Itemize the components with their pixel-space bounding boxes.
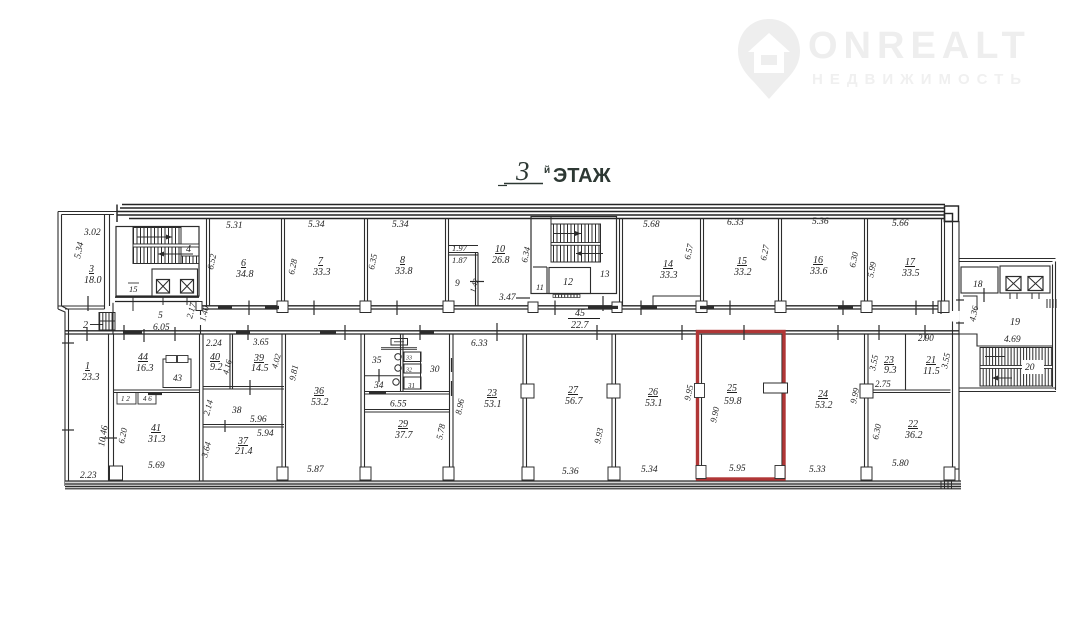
svg-text:7: 7: [318, 256, 324, 267]
svg-text:6.20: 6.20: [116, 426, 129, 444]
svg-text:53.2: 53.2: [311, 397, 329, 408]
svg-text:26.8: 26.8: [492, 255, 510, 266]
svg-text:6.28: 6.28: [286, 257, 299, 275]
svg-text:34.8: 34.8: [235, 269, 254, 280]
svg-text:9.3: 9.3: [884, 365, 897, 376]
svg-text:33.6: 33.6: [809, 266, 828, 277]
svg-text:31: 31: [407, 382, 415, 390]
svg-text:43: 43: [173, 373, 183, 383]
svg-text:34: 34: [373, 381, 384, 391]
svg-text:5.68: 5.68: [643, 220, 660, 230]
svg-text:5.33: 5.33: [809, 465, 826, 475]
svg-text:5.78: 5.78: [434, 422, 447, 440]
svg-text:2.24: 2.24: [206, 338, 222, 348]
svg-text:6.27: 6.27: [758, 243, 771, 261]
svg-text:32: 32: [405, 368, 412, 374]
svg-text:2.75: 2.75: [875, 379, 891, 389]
svg-text:13: 13: [600, 270, 610, 280]
svg-text:9.93: 9.93: [592, 426, 605, 444]
svg-text:6.33: 6.33: [471, 339, 488, 349]
svg-text:11.5: 11.5: [923, 366, 940, 377]
svg-text:6: 6: [241, 258, 246, 269]
svg-text:11: 11: [536, 282, 544, 292]
svg-text:9.90: 9.90: [708, 405, 721, 423]
svg-text:6.35: 6.35: [366, 252, 379, 270]
svg-text:33.3: 33.3: [312, 267, 331, 278]
svg-text:1 2: 1 2: [121, 395, 130, 403]
svg-text:1: 1: [85, 361, 90, 372]
svg-text:36.2: 36.2: [904, 430, 923, 441]
svg-text:17: 17: [905, 257, 916, 268]
svg-text:26: 26: [648, 387, 658, 398]
svg-text:29: 29: [398, 419, 408, 430]
svg-text:6.57: 6.57: [682, 242, 695, 260]
svg-text:2.23: 2.23: [80, 471, 97, 481]
svg-text:59.8: 59.8: [724, 396, 742, 407]
svg-text:8: 8: [400, 255, 405, 266]
svg-text:1.42: 1.42: [468, 278, 480, 294]
svg-text:38: 38: [231, 406, 242, 416]
svg-text:23: 23: [487, 388, 497, 399]
svg-text:5.69: 5.69: [148, 461, 165, 471]
svg-text:8.96: 8.96: [453, 397, 466, 415]
svg-text:5.99: 5.99: [865, 260, 878, 278]
svg-text:4 6: 4 6: [143, 395, 152, 403]
svg-text:5: 5: [158, 311, 163, 321]
svg-text:33.3: 33.3: [659, 270, 678, 281]
svg-text:22: 22: [908, 419, 918, 430]
svg-text:16: 16: [813, 255, 823, 266]
svg-text:5.31: 5.31: [226, 221, 243, 231]
svg-text:20: 20: [1025, 363, 1035, 373]
svg-text:ONREALT: ONREALT: [808, 25, 1031, 67]
svg-text:й: й: [544, 165, 550, 176]
svg-text:ЭТАЖ: ЭТАЖ: [553, 165, 612, 187]
svg-text:33: 33: [405, 356, 412, 362]
svg-text:4.16: 4.16: [220, 358, 234, 376]
svg-text:37.7: 37.7: [394, 430, 414, 441]
svg-text:10: 10: [495, 244, 505, 255]
svg-text:23.3: 23.3: [82, 372, 100, 383]
svg-text:4.02: 4.02: [269, 352, 283, 370]
svg-text:53.2: 53.2: [815, 400, 833, 411]
svg-text:3: 3: [515, 156, 530, 186]
svg-text:НЕДВИЖИМОСТЬ: НЕДВИЖИМОСТЬ: [812, 71, 1028, 88]
svg-text:3.64: 3.64: [199, 440, 213, 459]
svg-text:9: 9: [455, 279, 460, 289]
svg-text:5.36: 5.36: [812, 217, 829, 227]
svg-text:21.4: 21.4: [235, 446, 253, 457]
svg-text:3: 3: [88, 264, 94, 275]
svg-text:5.66: 5.66: [892, 219, 909, 229]
svg-text:21: 21: [926, 355, 936, 366]
svg-text:5.94: 5.94: [257, 429, 274, 439]
svg-text:5.96: 5.96: [250, 415, 267, 425]
svg-text:6.30: 6.30: [870, 422, 883, 440]
svg-text:27: 27: [568, 385, 579, 396]
svg-text:12: 12: [563, 277, 573, 288]
svg-text:45: 45: [575, 308, 585, 319]
svg-text:5.34: 5.34: [641, 465, 658, 475]
svg-text:5.80: 5.80: [892, 459, 909, 469]
svg-text:53.1: 53.1: [484, 399, 502, 410]
svg-text:9.95: 9.95: [682, 383, 695, 401]
svg-text:18: 18: [973, 280, 983, 290]
svg-text:5.34: 5.34: [308, 220, 325, 230]
svg-text:1.97: 1.97: [452, 243, 468, 253]
svg-text:33.5: 33.5: [901, 268, 920, 279]
svg-text:44: 44: [138, 352, 148, 363]
svg-text:3.47: 3.47: [498, 293, 517, 303]
svg-text:3.55: 3.55: [939, 351, 952, 370]
svg-text:5.34: 5.34: [392, 220, 409, 230]
svg-text:16.3: 16.3: [136, 363, 154, 374]
svg-text:30: 30: [429, 365, 440, 375]
svg-text:6.55: 6.55: [390, 400, 407, 410]
svg-text:53.1: 53.1: [645, 398, 663, 409]
svg-text:14.5: 14.5: [251, 363, 269, 374]
svg-text:36: 36: [313, 386, 324, 397]
svg-text:6.34: 6.34: [519, 245, 532, 263]
svg-text:19: 19: [1010, 317, 1020, 328]
svg-text:24: 24: [818, 389, 828, 400]
svg-text:5.95: 5.95: [729, 464, 746, 474]
svg-text:5.87: 5.87: [307, 465, 325, 475]
svg-text:4: 4: [186, 244, 191, 255]
svg-text:6.52: 6.52: [205, 252, 218, 270]
svg-text:41: 41: [151, 423, 161, 434]
svg-text:9.99: 9.99: [848, 386, 861, 404]
svg-text:1.87: 1.87: [452, 255, 468, 265]
svg-text:3.55: 3.55: [867, 353, 880, 372]
svg-text:4.69: 4.69: [1004, 335, 1021, 345]
svg-text:56.7: 56.7: [565, 396, 584, 407]
svg-text:33.8: 33.8: [394, 266, 413, 277]
svg-text:31.3: 31.3: [147, 434, 166, 445]
svg-text:6.30: 6.30: [847, 250, 860, 268]
svg-text:15: 15: [129, 284, 138, 294]
svg-text:5.34: 5.34: [73, 241, 86, 260]
svg-text:22.7: 22.7: [571, 320, 590, 331]
svg-text:9.81: 9.81: [287, 364, 300, 381]
svg-text:6.05: 6.05: [153, 323, 170, 333]
svg-text:35: 35: [371, 356, 382, 366]
svg-text:5.36: 5.36: [562, 467, 579, 477]
svg-text:33.2: 33.2: [733, 267, 752, 278]
svg-text:2.90: 2.90: [918, 333, 934, 343]
svg-text:6.33: 6.33: [727, 218, 744, 228]
svg-text:3.65: 3.65: [252, 337, 269, 347]
svg-text:25: 25: [727, 383, 737, 394]
svg-text:18.0: 18.0: [84, 275, 102, 286]
svg-text:3.02: 3.02: [83, 228, 101, 238]
svg-text:14: 14: [663, 259, 673, 270]
svg-text:15: 15: [737, 256, 747, 267]
svg-text:4.36: 4.36: [967, 304, 980, 322]
